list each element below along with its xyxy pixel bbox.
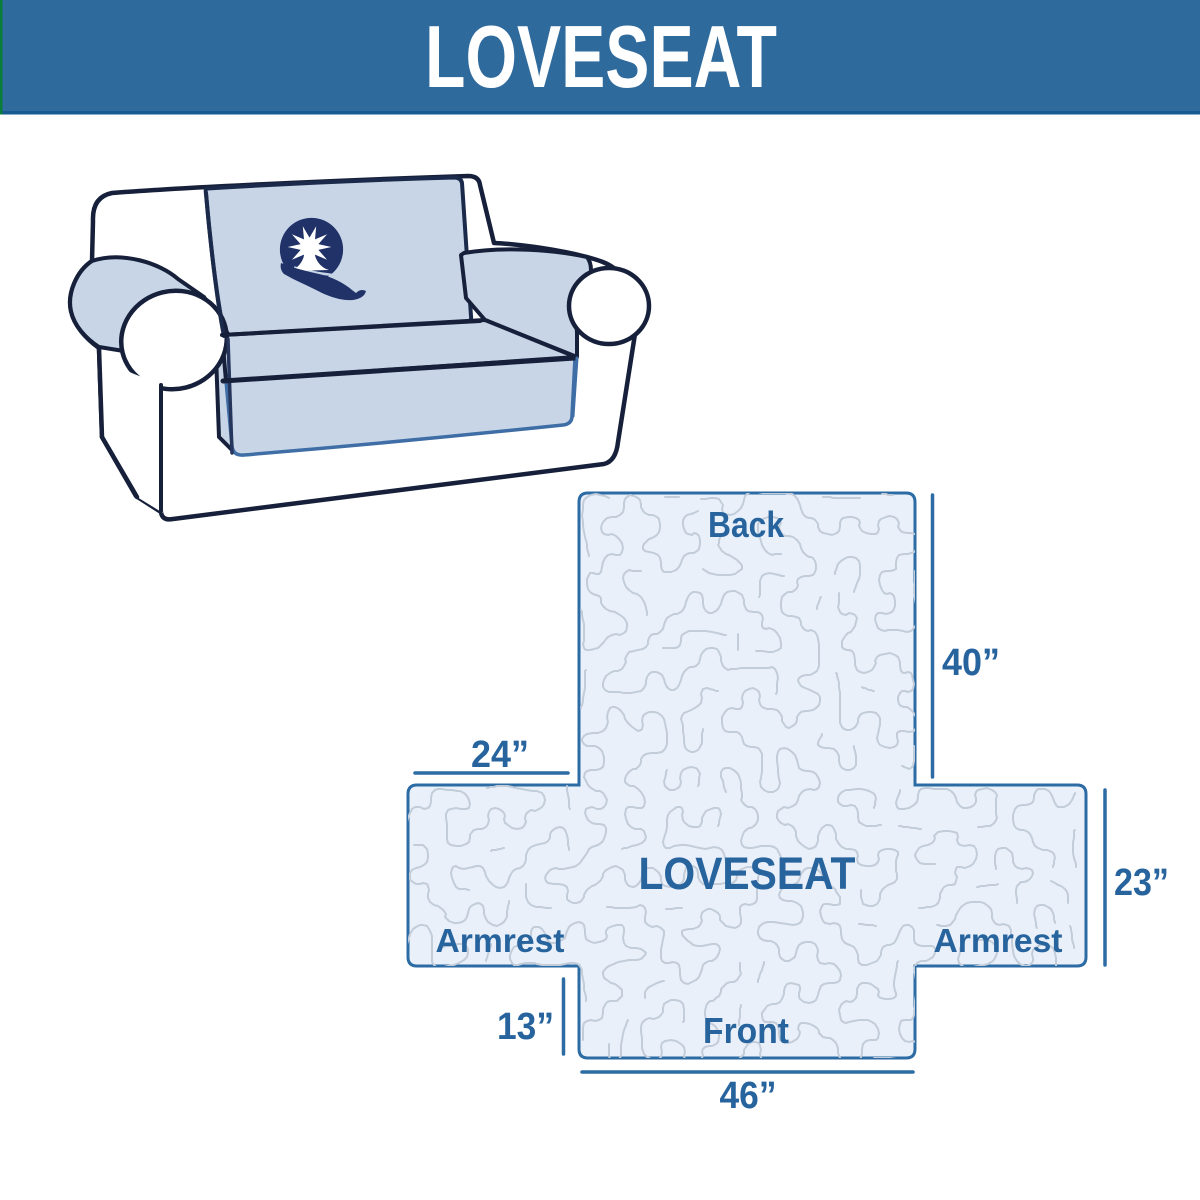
- svg-text:LOVESEAT: LOVESEAT: [639, 848, 856, 899]
- svg-text:23”: 23”: [1114, 862, 1169, 904]
- svg-text:Armrest: Armrest: [934, 922, 1063, 959]
- svg-text:Front: Front: [703, 1010, 789, 1051]
- svg-text:Armrest: Armrest: [436, 922, 565, 959]
- svg-text:46”: 46”: [720, 1075, 777, 1117]
- svg-text:13”: 13”: [497, 1006, 554, 1048]
- svg-text:40”: 40”: [942, 642, 1000, 684]
- svg-text:LOVESEAT: LOVESEAT: [425, 7, 777, 106]
- svg-text:Back: Back: [708, 504, 785, 545]
- svg-text:24”: 24”: [471, 734, 529, 776]
